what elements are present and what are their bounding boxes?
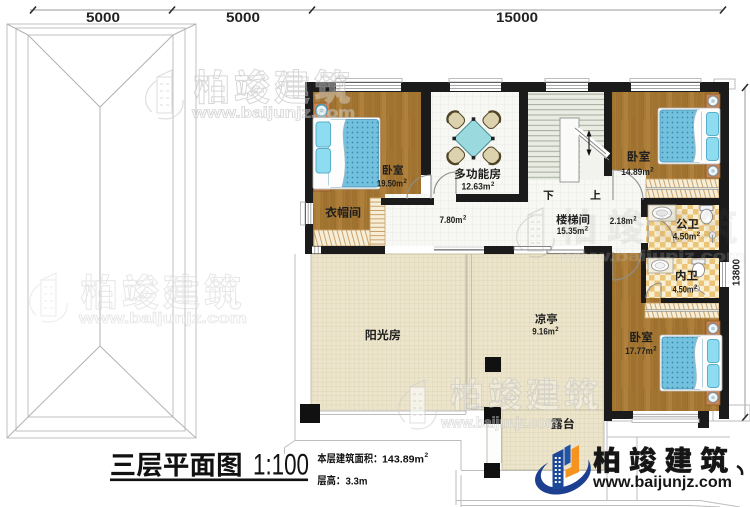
- svg-text:www.baijunjz.com: www.baijunjz.com: [559, 248, 745, 265]
- svg-text:17.77m: 17.77m: [625, 346, 653, 357]
- svg-text:12.63m: 12.63m: [462, 182, 491, 193]
- svg-text:www.baijunjz.com: www.baijunjz.com: [592, 474, 732, 491]
- svg-text:15000: 15000: [496, 9, 538, 25]
- svg-text:www.baijunjz.com: www.baijunjz.com: [440, 415, 558, 432]
- svg-text:www.baijunjz.com: www.baijunjz.com: [78, 310, 247, 327]
- svg-text:9.16m: 9.16m: [532, 327, 555, 338]
- svg-text:4.50m: 4.50m: [673, 284, 694, 295]
- svg-text:3.3m: 3.3m: [346, 476, 368, 488]
- svg-text:5000: 5000: [226, 9, 260, 25]
- svg-text:2: 2: [425, 452, 429, 459]
- svg-text:www.baijunjz.com: www.baijunjz.com: [191, 105, 355, 122]
- svg-text:143.89m: 143.89m: [382, 454, 424, 466]
- svg-text:19.50m: 19.50m: [377, 179, 403, 190]
- svg-text:7.80m: 7.80m: [440, 215, 463, 226]
- svg-text:14.89m: 14.89m: [621, 167, 650, 178]
- svg-text:1:100: 1:100: [253, 449, 309, 482]
- svg-text:5000: 5000: [86, 9, 120, 25]
